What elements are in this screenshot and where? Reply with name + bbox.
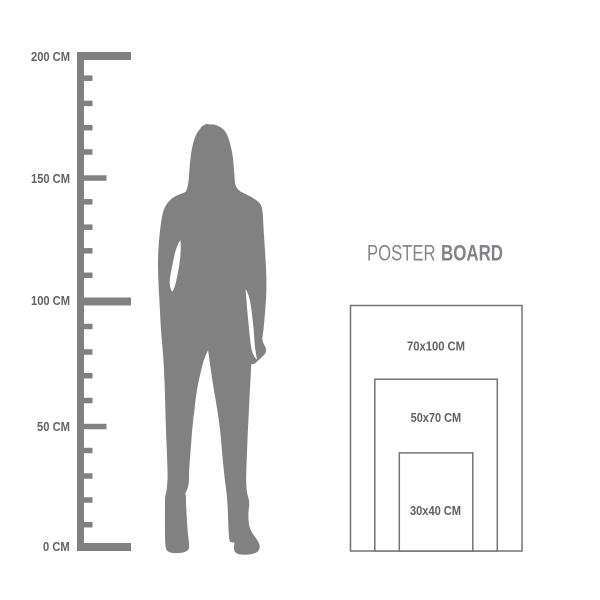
svg-text:100 CM: 100 CM bbox=[31, 293, 70, 308]
svg-text:POSTER: POSTER bbox=[367, 240, 436, 265]
svg-text:0 CM: 0 CM bbox=[43, 539, 70, 554]
svg-text:50x70 CM: 50x70 CM bbox=[411, 410, 462, 425]
svg-text:200 CM: 200 CM bbox=[31, 49, 70, 64]
svg-text:70x100 CM: 70x100 CM bbox=[407, 339, 465, 354]
svg-text:BOARD: BOARD bbox=[441, 240, 503, 265]
svg-text:30x40 CM: 30x40 CM bbox=[410, 503, 461, 518]
svg-text:50 CM: 50 CM bbox=[37, 419, 70, 434]
svg-text:150 CM: 150 CM bbox=[31, 171, 70, 186]
